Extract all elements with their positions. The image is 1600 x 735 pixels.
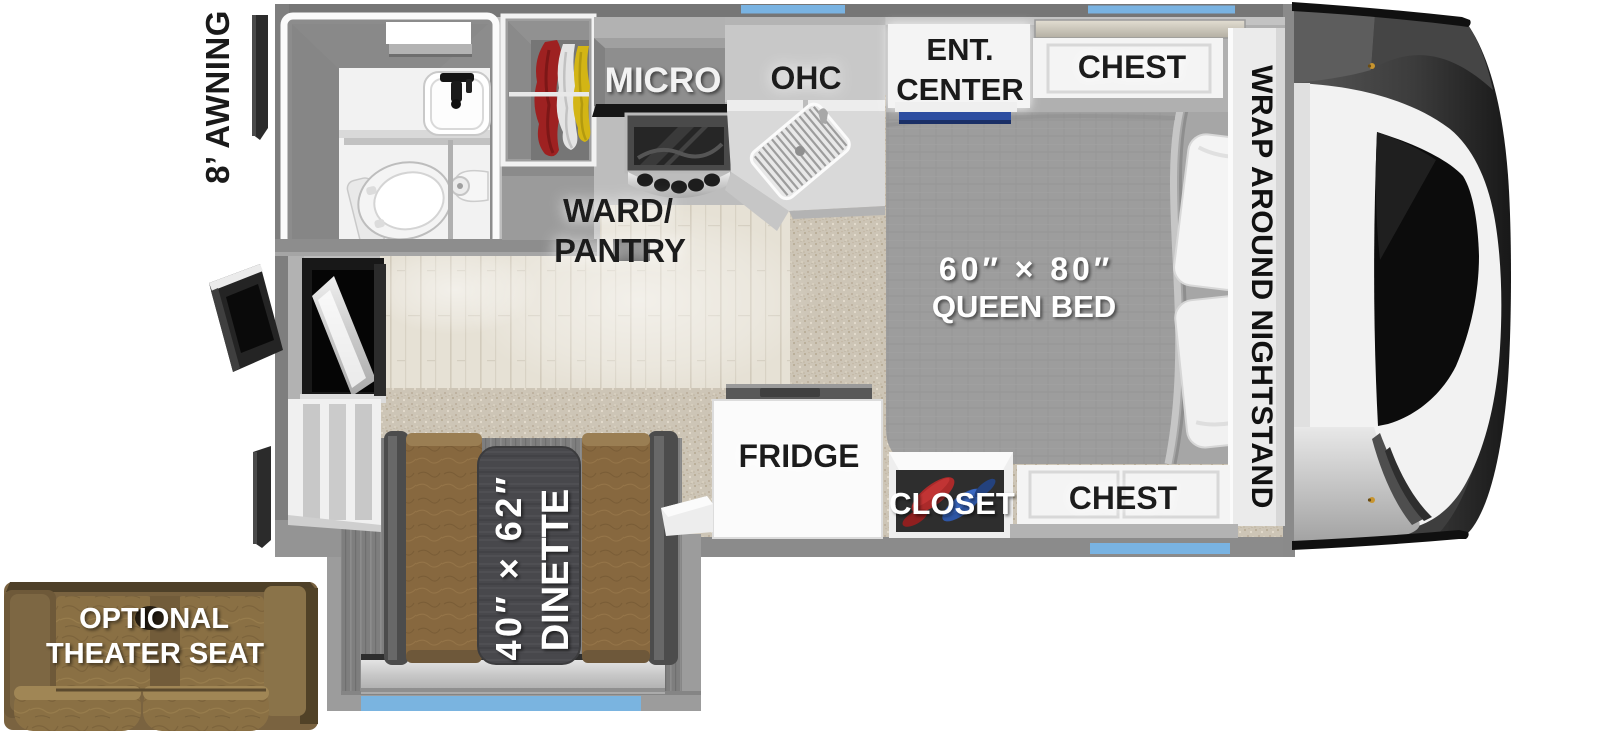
svg-text:OHC: OHC bbox=[770, 60, 841, 96]
svg-text:QUEEN BED: QUEEN BED bbox=[932, 289, 1116, 324]
svg-text:DINETTE: DINETTE bbox=[535, 489, 577, 652]
svg-text:CLOSET: CLOSET bbox=[889, 486, 1015, 521]
svg-text:ENT.: ENT. bbox=[926, 32, 993, 67]
svg-text:FRIDGE: FRIDGE bbox=[739, 438, 860, 474]
svg-text:8’ AWNING: 8’ AWNING bbox=[199, 10, 236, 184]
svg-text:40″ × 62″: 40″ × 62″ bbox=[488, 473, 529, 660]
svg-text:MICRO: MICRO bbox=[605, 61, 722, 100]
svg-text:OPTIONAL: OPTIONAL bbox=[79, 603, 229, 635]
svg-text:THEATER SEAT: THEATER SEAT bbox=[46, 638, 264, 670]
svg-text:CHEST: CHEST bbox=[1078, 49, 1187, 85]
svg-text:CENTER: CENTER bbox=[896, 72, 1023, 107]
svg-text:60″ × 80″: 60″ × 80″ bbox=[939, 251, 1113, 287]
svg-text:WARD/: WARD/ bbox=[563, 192, 673, 229]
svg-text:PANTRY: PANTRY bbox=[554, 232, 686, 269]
svg-text:WRAP AROUND NIGHTSTAND: WRAP AROUND NIGHTSTAND bbox=[1245, 65, 1278, 509]
svg-text:CHEST: CHEST bbox=[1069, 480, 1178, 516]
